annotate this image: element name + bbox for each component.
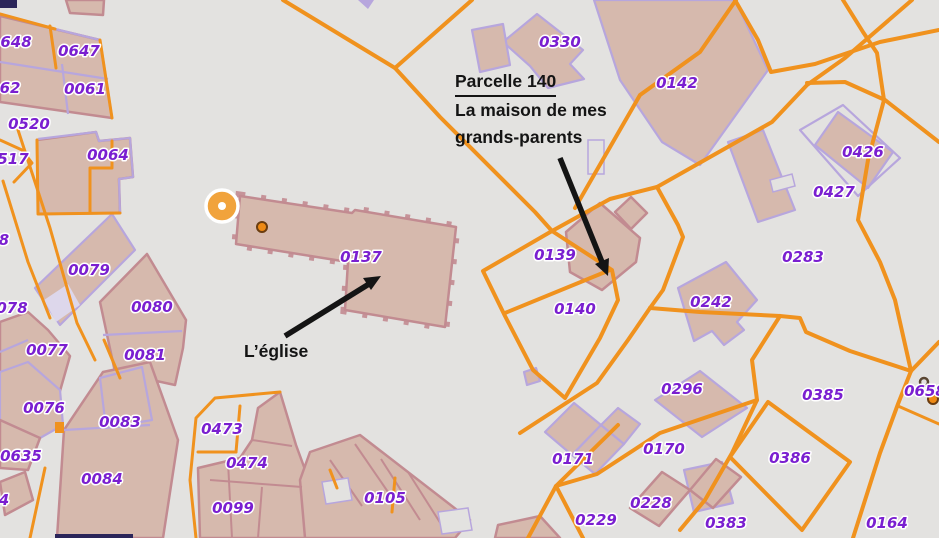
- navy-fragment: [0, 0, 17, 8]
- parcel-label-0099: 0099: [212, 499, 254, 517]
- road: [853, 371, 911, 538]
- clipped-parcel-fragment-top: [358, 0, 374, 9]
- parcel-label-0079: 0079: [68, 261, 110, 279]
- parcel-label-0228: 0228: [630, 494, 672, 512]
- annotation-parcelle-140: Parcelle 140 La maison de mes grands-par…: [455, 68, 607, 151]
- parcel-label-517: 517: [0, 150, 29, 168]
- parcel-label-0170: 0170: [643, 440, 685, 458]
- annotation-parcelle-line1: La maison de mes: [455, 97, 607, 124]
- parcel-label-0139: 0139: [534, 246, 576, 264]
- road: [735, 0, 939, 72]
- small-orange-marker: [55, 422, 64, 433]
- parcel-label-0242: 0242: [690, 293, 732, 311]
- parcel-label-0083: 0083: [99, 413, 141, 431]
- parcel-label-0142: 0142: [656, 74, 698, 92]
- parcel-label-8: 8: [0, 231, 9, 249]
- parcel-label-4: 4: [0, 491, 9, 509]
- parcel-label-0084: 0084: [81, 470, 123, 488]
- parcel-label-0647: 0647: [58, 42, 100, 60]
- building-strip-se-0105: [495, 516, 560, 538]
- building-west-of-0330: [472, 24, 510, 72]
- parcel-label-0283: 0283: [782, 248, 824, 266]
- annotation-parcelle-title: Parcelle 140: [455, 68, 556, 97]
- parcel-label-0105: 0105: [364, 489, 406, 507]
- road: [898, 406, 939, 424]
- parcel-label-0426: 0426: [842, 143, 884, 161]
- parcel-label-0164: 0164: [866, 514, 908, 532]
- parcel-label-0061: 0061: [64, 80, 106, 98]
- parcel-label-078: 078: [0, 299, 28, 317]
- road: [911, 342, 939, 371]
- parcel-label-0473: 0473: [201, 420, 243, 438]
- building-block-0083-0084: [57, 362, 178, 538]
- parcel-label-0427: 0427: [813, 183, 855, 201]
- building-top-edge: [66, 0, 104, 15]
- parcel-label-0296: 0296: [661, 380, 703, 398]
- road: [30, 468, 45, 538]
- parcel-label-0386: 0386: [769, 449, 811, 467]
- parcel-label-0081: 0081: [124, 346, 166, 364]
- church-point-center: [218, 202, 226, 210]
- parcel-label-0474: 0474: [226, 454, 268, 472]
- parcel-label-0137: 0137: [340, 248, 382, 266]
- parcel-label-0076: 0076: [23, 399, 65, 417]
- annotation-parcelle-title-row: Parcelle 140: [455, 68, 607, 97]
- parcel-label-0383: 0383: [705, 514, 747, 532]
- parcel-label-0330: 0330: [539, 33, 581, 51]
- road: [395, 0, 472, 68]
- parcel-label-0064: 0064: [87, 146, 129, 164]
- parcel-label-0171: 0171: [552, 450, 594, 468]
- tower-dot: [257, 222, 267, 232]
- parcel-label-0520: 0520: [8, 115, 50, 133]
- cadastral-map-view: 6480647620061052051700640330014204260427…: [0, 0, 939, 538]
- annotation-eglise: L’église: [244, 338, 308, 365]
- courtyard-notch: [322, 478, 352, 504]
- parcel-label-0229: 0229: [575, 511, 617, 529]
- parcel-label-0077: 0077: [26, 341, 68, 359]
- parcel-label-0080: 0080: [131, 298, 173, 316]
- parcel-label-62: 62: [0, 79, 20, 97]
- parcel-label-0385: 0385: [802, 386, 844, 404]
- parcel-label-0635: 0635: [0, 447, 42, 465]
- parcel-label-0658: 0658: [904, 382, 939, 400]
- parcel-label-648: 648: [0, 33, 31, 51]
- navy-fragment: [55, 534, 133, 538]
- annotation-parcelle-line2: grands-parents: [455, 124, 607, 151]
- courtyard-notch: [438, 508, 472, 534]
- parcel-label-0140: 0140: [554, 300, 596, 318]
